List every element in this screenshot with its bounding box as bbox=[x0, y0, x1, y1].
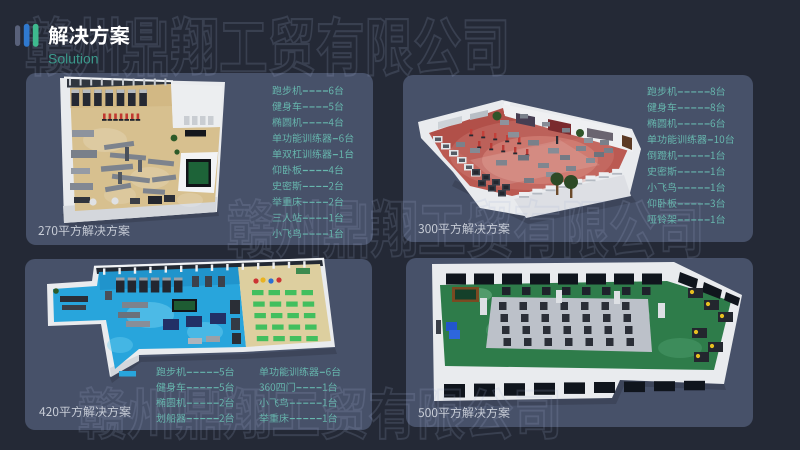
svg-text:Solution: Solution bbox=[48, 51, 99, 67]
